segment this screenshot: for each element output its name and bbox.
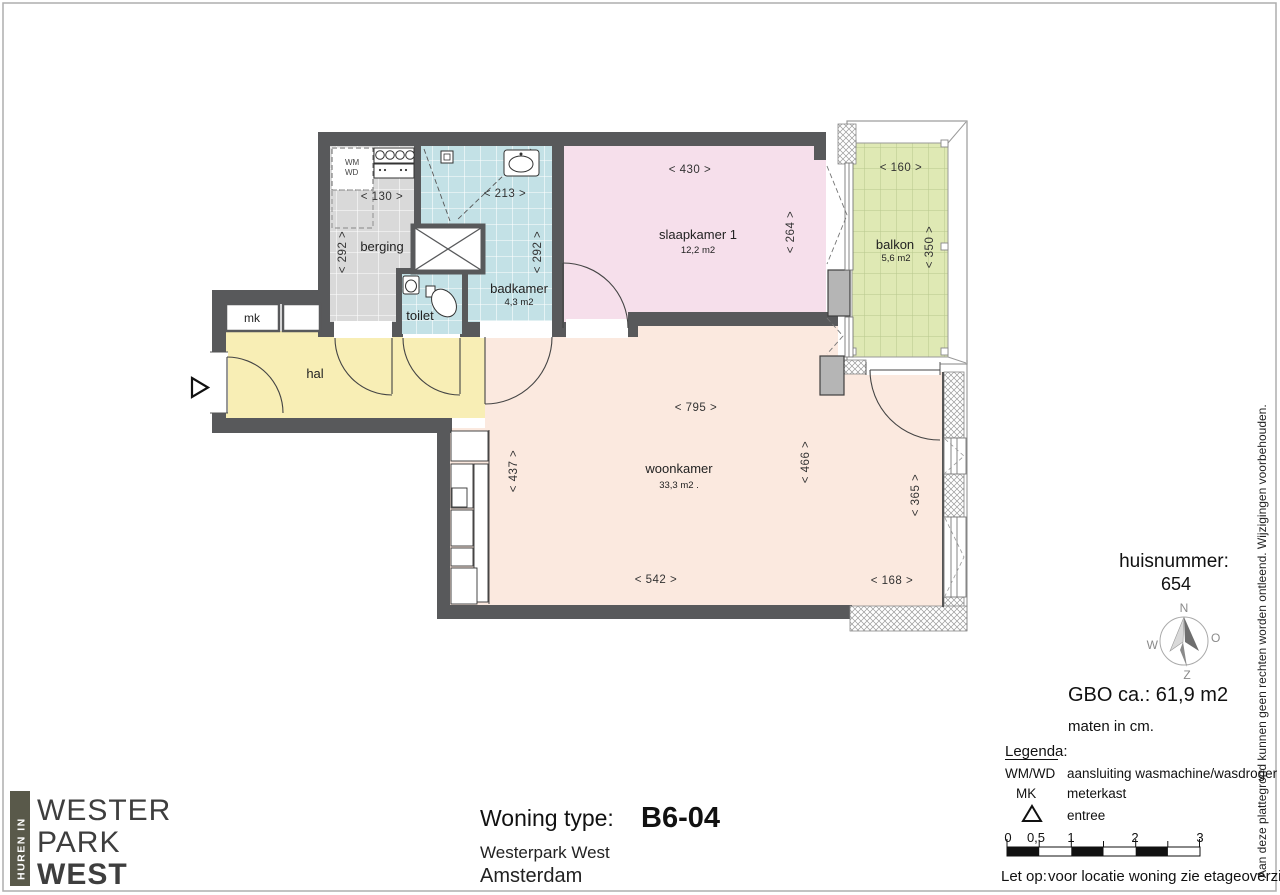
dim-542: < 542 > — [635, 574, 678, 586]
logo-line1: WESTER — [37, 794, 171, 827]
huisnummer-label: huisnummer: — [1119, 551, 1229, 572]
gbo-text: GBO ca.: 61,9 m2 — [1068, 684, 1228, 706]
units-note: maten in cm. — [1068, 718, 1154, 735]
mk-closet: mk — [226, 304, 320, 331]
logo-line3: WEST — [37, 858, 128, 891]
dim-213: < 213 > — [484, 188, 527, 200]
washbasin — [504, 150, 539, 176]
dim-430: < 430 > — [669, 164, 712, 176]
scale-05: 0,5 — [1027, 830, 1045, 845]
dim-466: < 466 > — [800, 441, 812, 484]
mk-label: mk — [244, 311, 261, 325]
wd-label: WD — [345, 168, 359, 177]
legend-entree-triangle-icon — [1023, 806, 1041, 821]
slaapkamer-label: slaapkamer 1 — [659, 227, 737, 242]
compass-w: W — [1147, 638, 1159, 652]
heater-unit — [374, 148, 414, 178]
compass-z: Z — [1183, 668, 1190, 682]
huisnummer-value: 654 — [1161, 574, 1191, 594]
compass-n: N — [1180, 601, 1189, 615]
kitchen-units — [451, 430, 489, 604]
dim-795: < 795 > — [675, 402, 718, 414]
disclaimer-text: Aan deze plattegrond kunnen geen rechten… — [1255, 404, 1269, 878]
dim-160: < 160 > — [880, 162, 923, 174]
logo-line2: PARK — [37, 826, 120, 859]
shaft — [413, 226, 483, 272]
westerpark-west-logo: HUREN IN WESTER PARK WEST — [10, 791, 171, 891]
woonkamer-label: woonkamer — [644, 461, 713, 476]
toilet-label: toilet — [406, 308, 434, 323]
legend-key-mk: MK — [1016, 786, 1036, 801]
legend-value-entree: entree — [1067, 808, 1105, 823]
berging-label: berging — [360, 239, 403, 254]
woning-type-value: B6-04 — [641, 802, 720, 834]
window-small — [944, 438, 966, 474]
scale-2: 2 — [1131, 830, 1138, 845]
badkamer-area: 4,3 m2 — [504, 297, 533, 308]
dim-350: < 350 > — [924, 226, 936, 269]
dim-292-badkamer: < 292 > — [532, 231, 544, 274]
logo-vertical-text: HUREN IN — [16, 817, 28, 880]
floorplan-page: WM WD mk bergi — [0, 0, 1280, 895]
legend-value-wmwd: aansluiting wasmachine/wasdroger — [1067, 766, 1278, 781]
project-name: Westerpark West — [480, 843, 610, 862]
slaapkamer-area: 12,2 m2 — [681, 245, 715, 256]
badkamer-label: badkamer — [490, 281, 548, 296]
dim-130: < 130 > — [361, 191, 404, 203]
dim-292-berging: < 292 > — [337, 231, 349, 274]
legend-key-wmwd: WM/WD — [1005, 766, 1055, 781]
woonkamer-area: 33,3 m2 . — [659, 480, 699, 491]
legend-title: Legenda: — [1005, 743, 1068, 760]
warning-label: Let op: — [1001, 868, 1047, 885]
balkon-area: 5,6 m2 — [881, 253, 910, 264]
balcony-door-opening — [866, 362, 940, 375]
dim-168: < 168 > — [871, 575, 914, 587]
compass-icon: N O W Z — [1147, 601, 1221, 682]
window-tall — [944, 517, 966, 597]
scale-bar: 0 0,5 1 2 3 — [1004, 830, 1203, 856]
dim-365: < 365 > — [910, 474, 922, 517]
wm-label: WM — [345, 158, 360, 167]
hal-label: hal — [306, 366, 323, 381]
city-name: Amsterdam — [480, 865, 582, 887]
dim-437: < 437 > — [508, 450, 520, 493]
compass-o: O — [1211, 631, 1220, 645]
room-hal-floor — [225, 331, 485, 418]
legend-value-mk: meterkast — [1067, 786, 1127, 801]
dim-264: < 264 > — [785, 211, 797, 254]
woning-type-label: Woning type: — [480, 805, 614, 831]
scale-0: 0 — [1004, 830, 1011, 845]
entrance-triangle-icon — [192, 378, 208, 397]
warning-text: voor locatie woning zie etageoverzicht. — [1048, 868, 1280, 885]
balkon-label: balkon — [876, 237, 914, 252]
